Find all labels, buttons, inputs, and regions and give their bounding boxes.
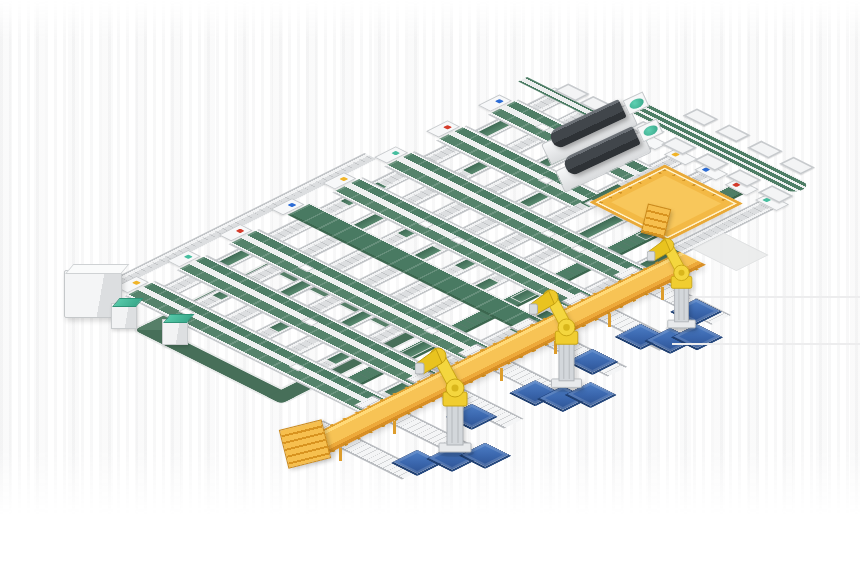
diverter-indicator <box>184 255 193 259</box>
diverter-indicator <box>391 151 400 155</box>
teal-cabinet <box>111 303 137 329</box>
diverter-indicator <box>132 281 141 285</box>
diverter-indicator <box>236 229 245 233</box>
faint-floor-line <box>688 296 860 298</box>
diverter-indicator <box>610 122 619 126</box>
diverter-indicator <box>495 99 504 103</box>
factory-render-stage <box>0 0 860 580</box>
diverter-indicator <box>339 177 348 181</box>
walkway-leg <box>339 448 342 461</box>
diverter-indicator <box>443 125 452 129</box>
diverter-indicator <box>288 203 297 207</box>
